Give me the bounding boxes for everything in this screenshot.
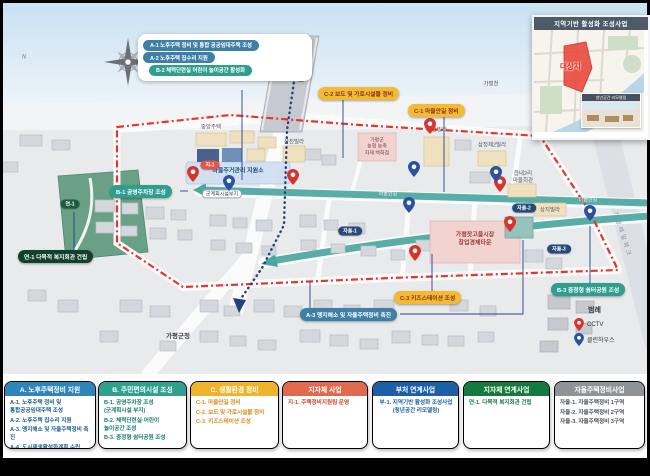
cleanhouse-pin: [584, 205, 596, 221]
legend-card-b-title: B. 주민편의시설 조성: [99, 382, 186, 396]
cctv-pin: [504, 216, 516, 232]
cleanhouse-pin: [223, 175, 235, 191]
map-legend-row-cleanhouse: 클린하우스: [574, 332, 644, 347]
callout-b1: B-1 공영주차장 조성: [110, 185, 172, 198]
label-samjung-villa: 삼정제2빌라: [478, 143, 506, 150]
legend-item: 자율-1. 자율주택정비 1구역: [560, 399, 640, 407]
legend-panel: A. 노후주택정비 지원 A-1. 노후주택 정비 및 통합공공임대주택 조성 …: [3, 374, 647, 458]
label-sangji-villa: 상지빌라: [540, 208, 560, 215]
legend-card-jayul: 자율주택정비사업 자율-1. 자율주택정비 1구역 자율-2. 자율주택정비 2…: [554, 381, 645, 449]
label-housing-support-center: 마을주거관리 지원소: [212, 168, 263, 176]
label-gapyeong-stream: 가평천: [483, 82, 498, 89]
area-pill-yeon1: 연-1: [60, 200, 79, 209]
cctv-pin: [424, 118, 436, 134]
legend-item: C-3. 키즈스테이션 조성: [196, 418, 274, 426]
map-legend-cleanhouse-label: 클린하우스: [587, 335, 615, 344]
cctv-pin: [409, 245, 421, 261]
inset-target-label: 대상지: [560, 61, 581, 72]
legend-item: B-2. 체력단련실·어린이 놀이공간 조성: [104, 417, 182, 433]
cleanhouse-pin-icon: [574, 333, 584, 346]
callout-a3: A-3 맹지해소 및 자율주택정비 촉진: [300, 308, 397, 321]
callout-group-box: A-1 노후주택 정비 및 통합 공공임대주택 조성 A-2 노후주택 집수리 …: [138, 34, 312, 81]
legend-card-a-title: A. 노후주택정비 지원: [5, 382, 95, 396]
building-blue: [222, 148, 242, 162]
cctv-pin: [287, 169, 299, 185]
area-pill-jayul2: 자율-2: [512, 204, 536, 213]
legend-card-c: C. 생활환경 정비 C-1. 마을안길 정비 C-2. 보도 및 가로시설물 …: [190, 381, 279, 449]
label-nonghyup-store: 가평군 농협 농축 자재 백화점: [365, 138, 389, 157]
label-jungang-housing: 중앙주택: [201, 125, 221, 132]
legend-card-jayul-title: 자율주택정비사업: [555, 382, 644, 396]
callout-c2: C-2 보도 및 가로시설물 정비: [318, 87, 399, 100]
map-legend-row-cctv: CCTV: [574, 317, 644, 332]
legend-card-local: 지자체 사업 지-1. 주택정비지원팀 운영: [282, 381, 368, 449]
area-pill-ji1: 지-1: [200, 161, 219, 170]
legend-card-local-link: 지자체 연계사업 연-1. 다목적 복지회관 건립: [463, 381, 550, 449]
inset-photo-caption: 청년공간 리모델링: [582, 94, 640, 101]
callout-a1: A-1 노후주택 정비 및 통합 공공임대주택 조성: [143, 40, 259, 51]
legend-item: A-4. 도시재생활성화계획 수립: [10, 444, 91, 449]
callout-a2: A-2 노후주택 집수리 지원: [143, 52, 215, 63]
legend-item: 자율-2. 자율주택정비 2구역: [560, 409, 640, 417]
legend-item: A-1. 노후주택 정비 및 통합공공임대주택 조성: [10, 399, 91, 415]
callout-b2: B-2 체력단련실 어린이 놀이공간 활성화: [149, 65, 252, 76]
area-pill-jayul1: 자율-1: [338, 227, 362, 236]
callout-yeon1: 연-1 다목적 복지회관 건립: [18, 250, 93, 263]
label-samjin-villa: 삼진빌라: [284, 140, 304, 147]
legend-item: A-3. 맹지해소 및 자율주택정비 촉진: [10, 426, 91, 442]
inset-map-body: 대상지 청년공간 리모델링: [534, 30, 644, 132]
legend-item: 지-1. 주택정비지원팀 운영: [288, 399, 363, 407]
map-legend: 범례 CCTV 클린하우스: [574, 305, 644, 347]
map-legend-title: 범례: [588, 305, 644, 315]
legend-item: 부-1. 지역기반 활성화 조성사업 (청년공간 리모델링): [378, 399, 454, 415]
legend-card-ministry-title: 부처 연계사업: [373, 382, 458, 396]
label-county-office: 가평군청: [166, 333, 190, 341]
label-village-road-2: 마을안길: [579, 197, 597, 203]
inset-title: 지역기반 활성화 조성사업: [534, 17, 648, 30]
legend-item: C-2. 보도 및 가로시설물 정비: [196, 409, 274, 417]
north-indicator: N: [22, 54, 26, 62]
legend-card-ministry: 부처 연계사업 부-1. 지역기반 활성화 조성사업 (청년공간 리모델링): [372, 381, 459, 449]
legend-card-a: A. 노후주택정비 지원 A-1. 노후주택 정비 및 통합공공임대주택 조성 …: [4, 381, 96, 449]
cctv-pin: [187, 166, 199, 182]
map-legend-cctv-label: CCTV: [587, 322, 603, 328]
label-village-hall: 읍내2리 마을회관: [513, 171, 533, 185]
callout-c1: C-1 마을안길 정비: [408, 104, 465, 117]
park-area: [58, 170, 148, 260]
legend-card-local-title: 지자체 사업: [283, 382, 367, 396]
legend-item: 자율-3. 자율주택정비 3구역: [560, 418, 640, 426]
callout-b3: B-3 중정형 쉼터공원 조성: [551, 283, 625, 296]
cleanhouse-pin: [408, 161, 420, 177]
legend-item: 연-1. 다목적 복지회관 건립: [469, 399, 545, 407]
map-poster: A-1 노후주택 정비 및 통합 공공임대주택 조성 A-2 노후주택 집수리 …: [0, 0, 650, 476]
label-market: 가평잣고을시장 창업경제타운: [456, 233, 495, 248]
area-pill-jayul3: 자율-3: [547, 245, 571, 254]
legend-item: B-3. 중정형 쉼터공원 조성: [104, 434, 182, 442]
inset-photo-art: [582, 101, 638, 125]
cleanhouse-pin: [403, 197, 415, 213]
cctv-pin-icon: [574, 318, 584, 331]
inset-photo: 청년공간 리모델링: [581, 93, 641, 128]
callout-c3: C-3 키즈스테이션 조성: [394, 291, 461, 304]
label-county-facility-site: 군계획시설부지: [202, 189, 242, 198]
legend-item: C-1. 마을안길 정비: [196, 399, 274, 407]
inset-locator-map: 지역기반 활성화 조성사업 대상지 청년공간 리모델링: [532, 15, 650, 140]
legend-item: A-2. 노후주택 집수리 지원: [10, 417, 91, 425]
legend-card-local-link-title: 지자체 연계사업: [464, 382, 549, 396]
legend-card-b: B. 주민편의시설 조성 B-1. 공영주차장 조성 (군계획시설 부지) B-…: [98, 381, 187, 449]
legend-card-c-title: C. 생활환경 정비: [191, 382, 278, 396]
legend-item: B-1. 공영주차장 조성 (군계획시설 부지): [104, 399, 182, 415]
cleanhouse-pin: [490, 166, 502, 182]
label-village-road-1: 마을안길: [379, 191, 397, 197]
